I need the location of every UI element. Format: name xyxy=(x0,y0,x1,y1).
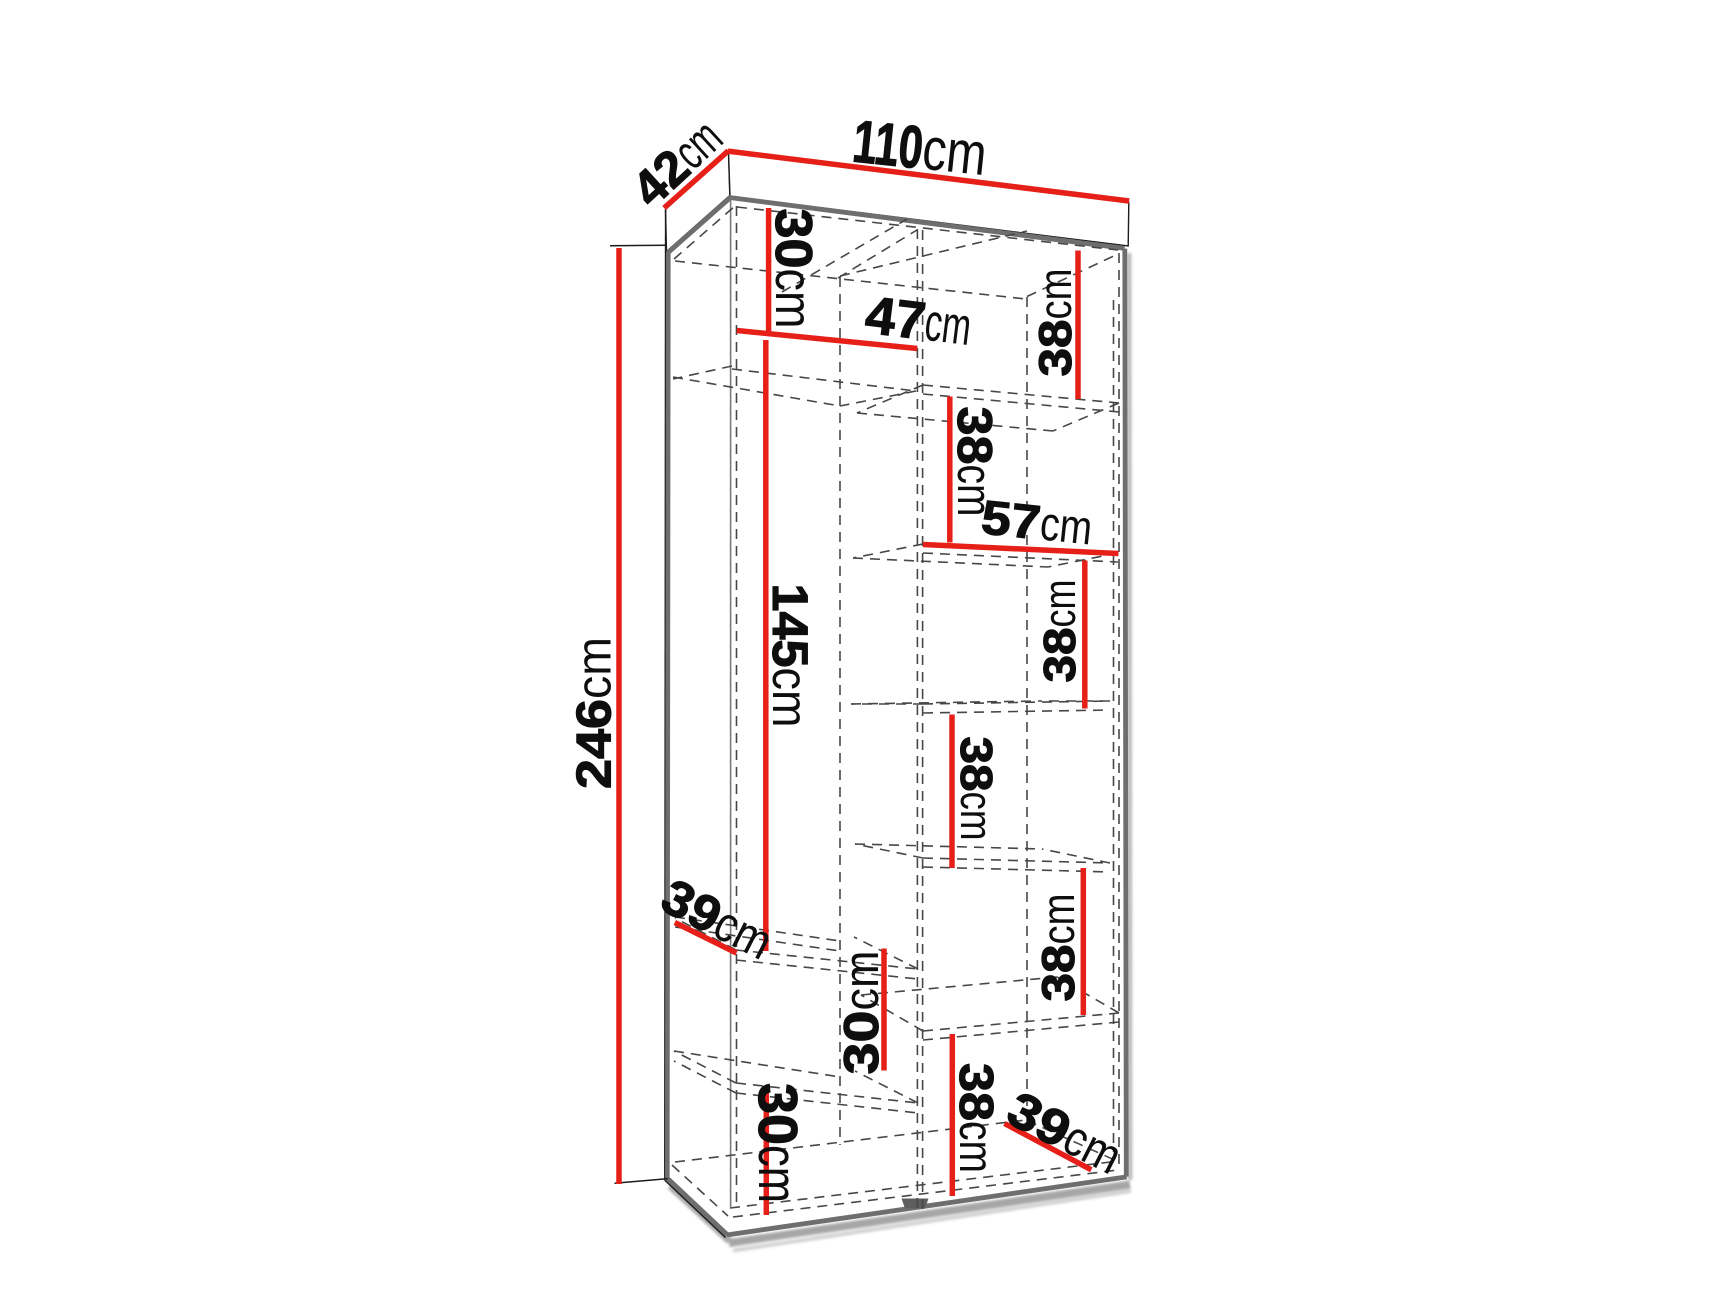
svg-text:38cm: 38cm xyxy=(949,1063,1002,1173)
svg-text:38cm: 38cm xyxy=(1034,580,1085,683)
svg-text:246cm: 246cm xyxy=(567,637,621,789)
svg-text:30cm: 30cm xyxy=(747,1083,809,1203)
svg-text:38cm: 38cm xyxy=(1032,894,1084,1002)
svg-text:38cm: 38cm xyxy=(951,737,1002,841)
svg-text:145cm: 145cm xyxy=(762,584,818,728)
svg-text:30cm: 30cm xyxy=(764,209,822,329)
svg-text:38cm: 38cm xyxy=(947,407,1001,517)
svg-text:38cm: 38cm xyxy=(1029,269,1081,377)
svg-text:110cm: 110cm xyxy=(850,107,990,188)
svg-text:30cm: 30cm xyxy=(835,951,889,1075)
